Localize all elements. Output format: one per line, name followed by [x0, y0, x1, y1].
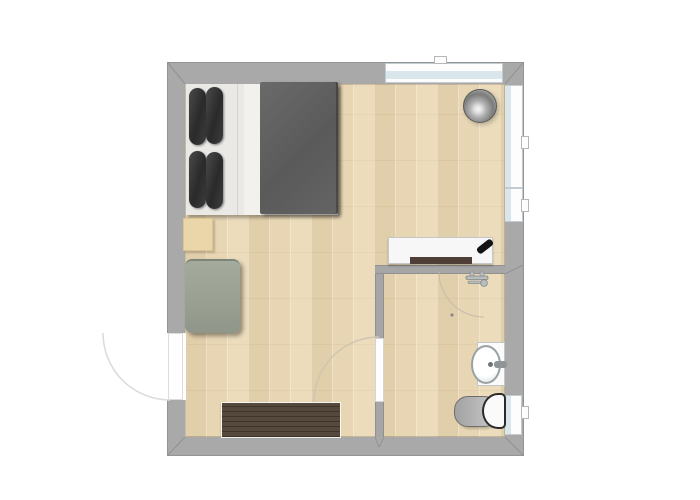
window-handle-icon	[434, 56, 447, 64]
faucet-icon	[494, 361, 507, 368]
interior-wall-horizontal	[375, 265, 505, 274]
pillow	[189, 151, 206, 208]
pillow	[189, 88, 206, 145]
window-handle-icon	[521, 136, 529, 149]
entrance-door-swing-arc	[103, 333, 170, 400]
window-handle-icon	[521, 199, 529, 212]
duvet	[260, 82, 338, 214]
toilet-lid-tank	[482, 393, 506, 429]
nightstand	[183, 218, 213, 251]
floor-plan-canvas	[0, 0, 700, 500]
floor-lamp	[463, 89, 497, 123]
pillow	[206, 87, 223, 144]
media-console-base	[410, 257, 472, 264]
drain-icon	[488, 362, 493, 367]
bed-sheet-line	[237, 84, 238, 215]
right-window-sash-divider	[505, 187, 523, 189]
top-window-glass	[386, 71, 502, 79]
sideboard	[222, 403, 340, 437]
pillow	[206, 152, 223, 209]
ottoman	[185, 259, 240, 333]
window-handle-icon	[521, 406, 529, 419]
bathroom-door-leaf	[375, 338, 384, 402]
right-window-upper-glass	[505, 86, 511, 221]
entrance-door-leaf	[168, 333, 183, 400]
